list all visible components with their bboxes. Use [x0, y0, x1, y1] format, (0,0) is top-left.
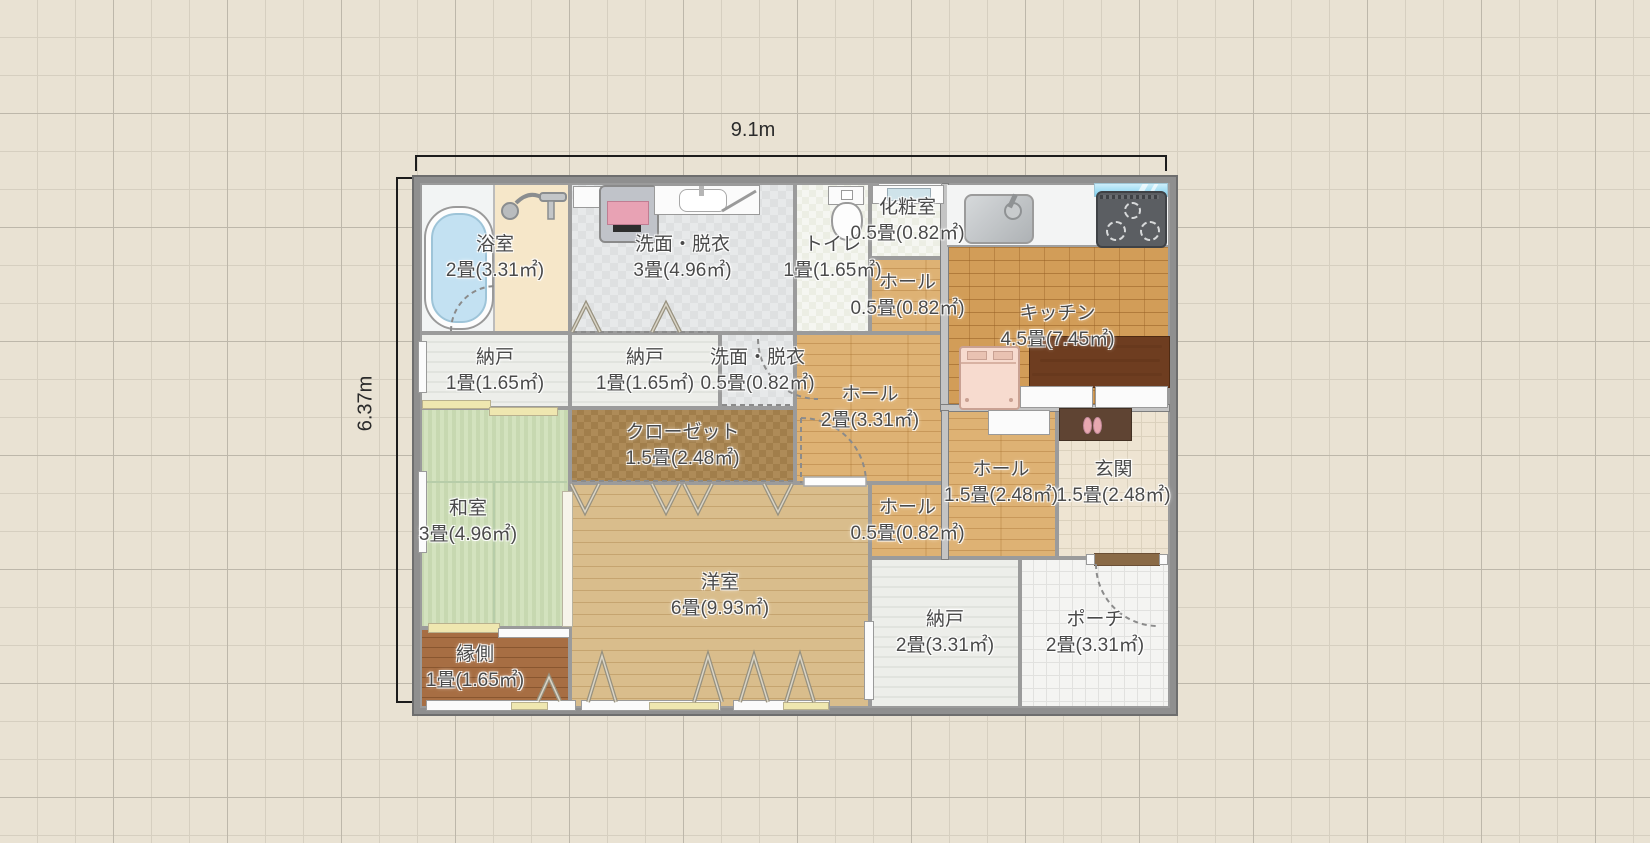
fusuma-door[interactable] — [562, 491, 573, 627]
washer-slot — [613, 225, 641, 232]
floorplan-canvas: { "dims": { "width_label": "9.1m", "heig… — [0, 0, 1650, 843]
burner — [1124, 202, 1141, 219]
kitchen-cabinet[interactable] — [1020, 386, 1093, 408]
window — [418, 341, 427, 393]
slippers-icon — [1093, 417, 1102, 434]
washing-machine-icon[interactable] — [599, 185, 659, 243]
wood-grain — [1040, 359, 1160, 362]
room-label: クローゼット 1.5畳(2.48㎡) — [625, 420, 739, 472]
room-japanese-room[interactable]: 和室 3畳(4.96㎡) — [420, 408, 570, 628]
room-veranda[interactable]: 縁側 1畳(1.65㎡) — [420, 628, 570, 708]
room-label: 縁側 1畳(1.65㎡) — [426, 642, 524, 694]
window — [426, 700, 576, 711]
room-storage-1[interactable]: 納戸 1畳(1.65㎡) — [420, 333, 570, 408]
room-hall-north[interactable]: ホール 0.5畳(0.82㎡) — [870, 258, 945, 333]
fridge-seam — [961, 362, 1016, 364]
width-dimension-label: 9.1m — [718, 119, 788, 142]
vanity-counter[interactable] — [654, 185, 760, 215]
window-sash — [783, 702, 829, 710]
bath-partition — [493, 185, 495, 331]
sliding-door[interactable] — [428, 623, 500, 633]
fridge-dot — [965, 398, 969, 402]
room-label: 和室 3畳(4.96㎡) — [419, 496, 517, 548]
room-label: ポーチ 2畳(3.31㎡) — [1046, 607, 1144, 659]
room-label: ホール 1.5畳(2.48㎡) — [944, 457, 1058, 509]
room-hall-center[interactable]: ホール 2畳(3.31㎡) — [795, 333, 945, 483]
stove-icon[interactable] — [1096, 191, 1167, 248]
room-porch[interactable]: ポーチ 2畳(3.31㎡) — [1020, 558, 1170, 708]
powder-sink-icon — [887, 188, 931, 201]
room-hall-small[interactable]: ホール 0.5畳(0.82㎡) — [870, 483, 945, 558]
wood-grain — [1032, 373, 1162, 376]
kitchen-cabinet[interactable] — [1095, 386, 1168, 408]
room-label: 玄関 1.5畳(2.48㎡) — [1056, 457, 1170, 509]
fridge-dot — [1009, 398, 1013, 402]
room-label: 納戸 2畳(3.31㎡) — [896, 607, 994, 659]
window — [418, 471, 427, 553]
wood-grain — [1034, 345, 1162, 348]
toilet-icon[interactable] — [831, 202, 863, 241]
kitchen-sink-icon[interactable] — [964, 194, 1034, 244]
bathtub-icon[interactable] — [426, 208, 492, 328]
window-sash — [649, 702, 719, 710]
fridge-handle — [993, 351, 1013, 360]
dining-table[interactable] — [1029, 336, 1170, 388]
sliding-door[interactable] — [422, 400, 491, 409]
shoe-cabinet[interactable] — [1059, 408, 1132, 441]
room-toilet[interactable]: トイレ 1畳(1.65㎡) — [795, 183, 870, 333]
wall-hall-divider — [941, 410, 949, 560]
room-label: 納戸 1畳(1.65㎡) — [446, 345, 544, 397]
window-sash — [511, 702, 548, 710]
room-western-room[interactable]: 洋室 6畳(9.93㎡) — [570, 483, 870, 708]
door-frame — [1086, 554, 1095, 565]
stove-vent — [1100, 195, 1159, 199]
floorplan: 浴室 2畳(3.31㎡) 洗面・脱衣 3畳(4.96㎡) トイレ 1畳(1.65… — [414, 177, 1176, 714]
sliding-door[interactable] — [864, 621, 874, 700]
tatami-seam — [423, 481, 567, 483]
room-label: 洋室 6畳(9.93㎡) — [671, 570, 769, 622]
slippers-icon — [1083, 417, 1092, 434]
tatami-seam — [493, 483, 495, 625]
room-closet[interactable]: クローゼット 1.5畳(2.48㎡) — [570, 408, 795, 483]
room-storage-3[interactable]: 納戸 2畳(3.31㎡) — [870, 558, 1020, 708]
burner — [1106, 221, 1126, 241]
washer-drawer — [607, 201, 649, 225]
refrigerator-icon[interactable] — [959, 346, 1020, 410]
room-storage-2[interactable]: 納戸 1畳(1.65㎡) — [570, 333, 720, 408]
sliding-door[interactable] — [498, 628, 570, 638]
door-frame — [1159, 554, 1168, 565]
burner — [1140, 221, 1160, 241]
height-dimension-line — [396, 177, 412, 703]
flush-button — [841, 190, 853, 200]
width-dimension-line — [415, 155, 1167, 171]
sliding-door[interactable] — [489, 407, 558, 416]
room-washroom-small[interactable]: 洗面・脱衣 0.5畳(0.82㎡) — [720, 333, 795, 408]
front-door[interactable] — [1094, 553, 1160, 566]
faucet-icon — [699, 186, 704, 196]
powder-counter[interactable] — [872, 185, 944, 204]
hall-cabinet[interactable] — [988, 410, 1050, 435]
room-label: 納戸 1畳(1.65㎡) — [596, 345, 694, 397]
fridge-handle — [967, 351, 987, 360]
height-dimension-label: 6.37m — [355, 364, 378, 444]
room-label: ホール 2畳(3.31㎡) — [821, 382, 919, 434]
room-label: トイレ 1畳(1.65㎡) — [783, 232, 881, 284]
